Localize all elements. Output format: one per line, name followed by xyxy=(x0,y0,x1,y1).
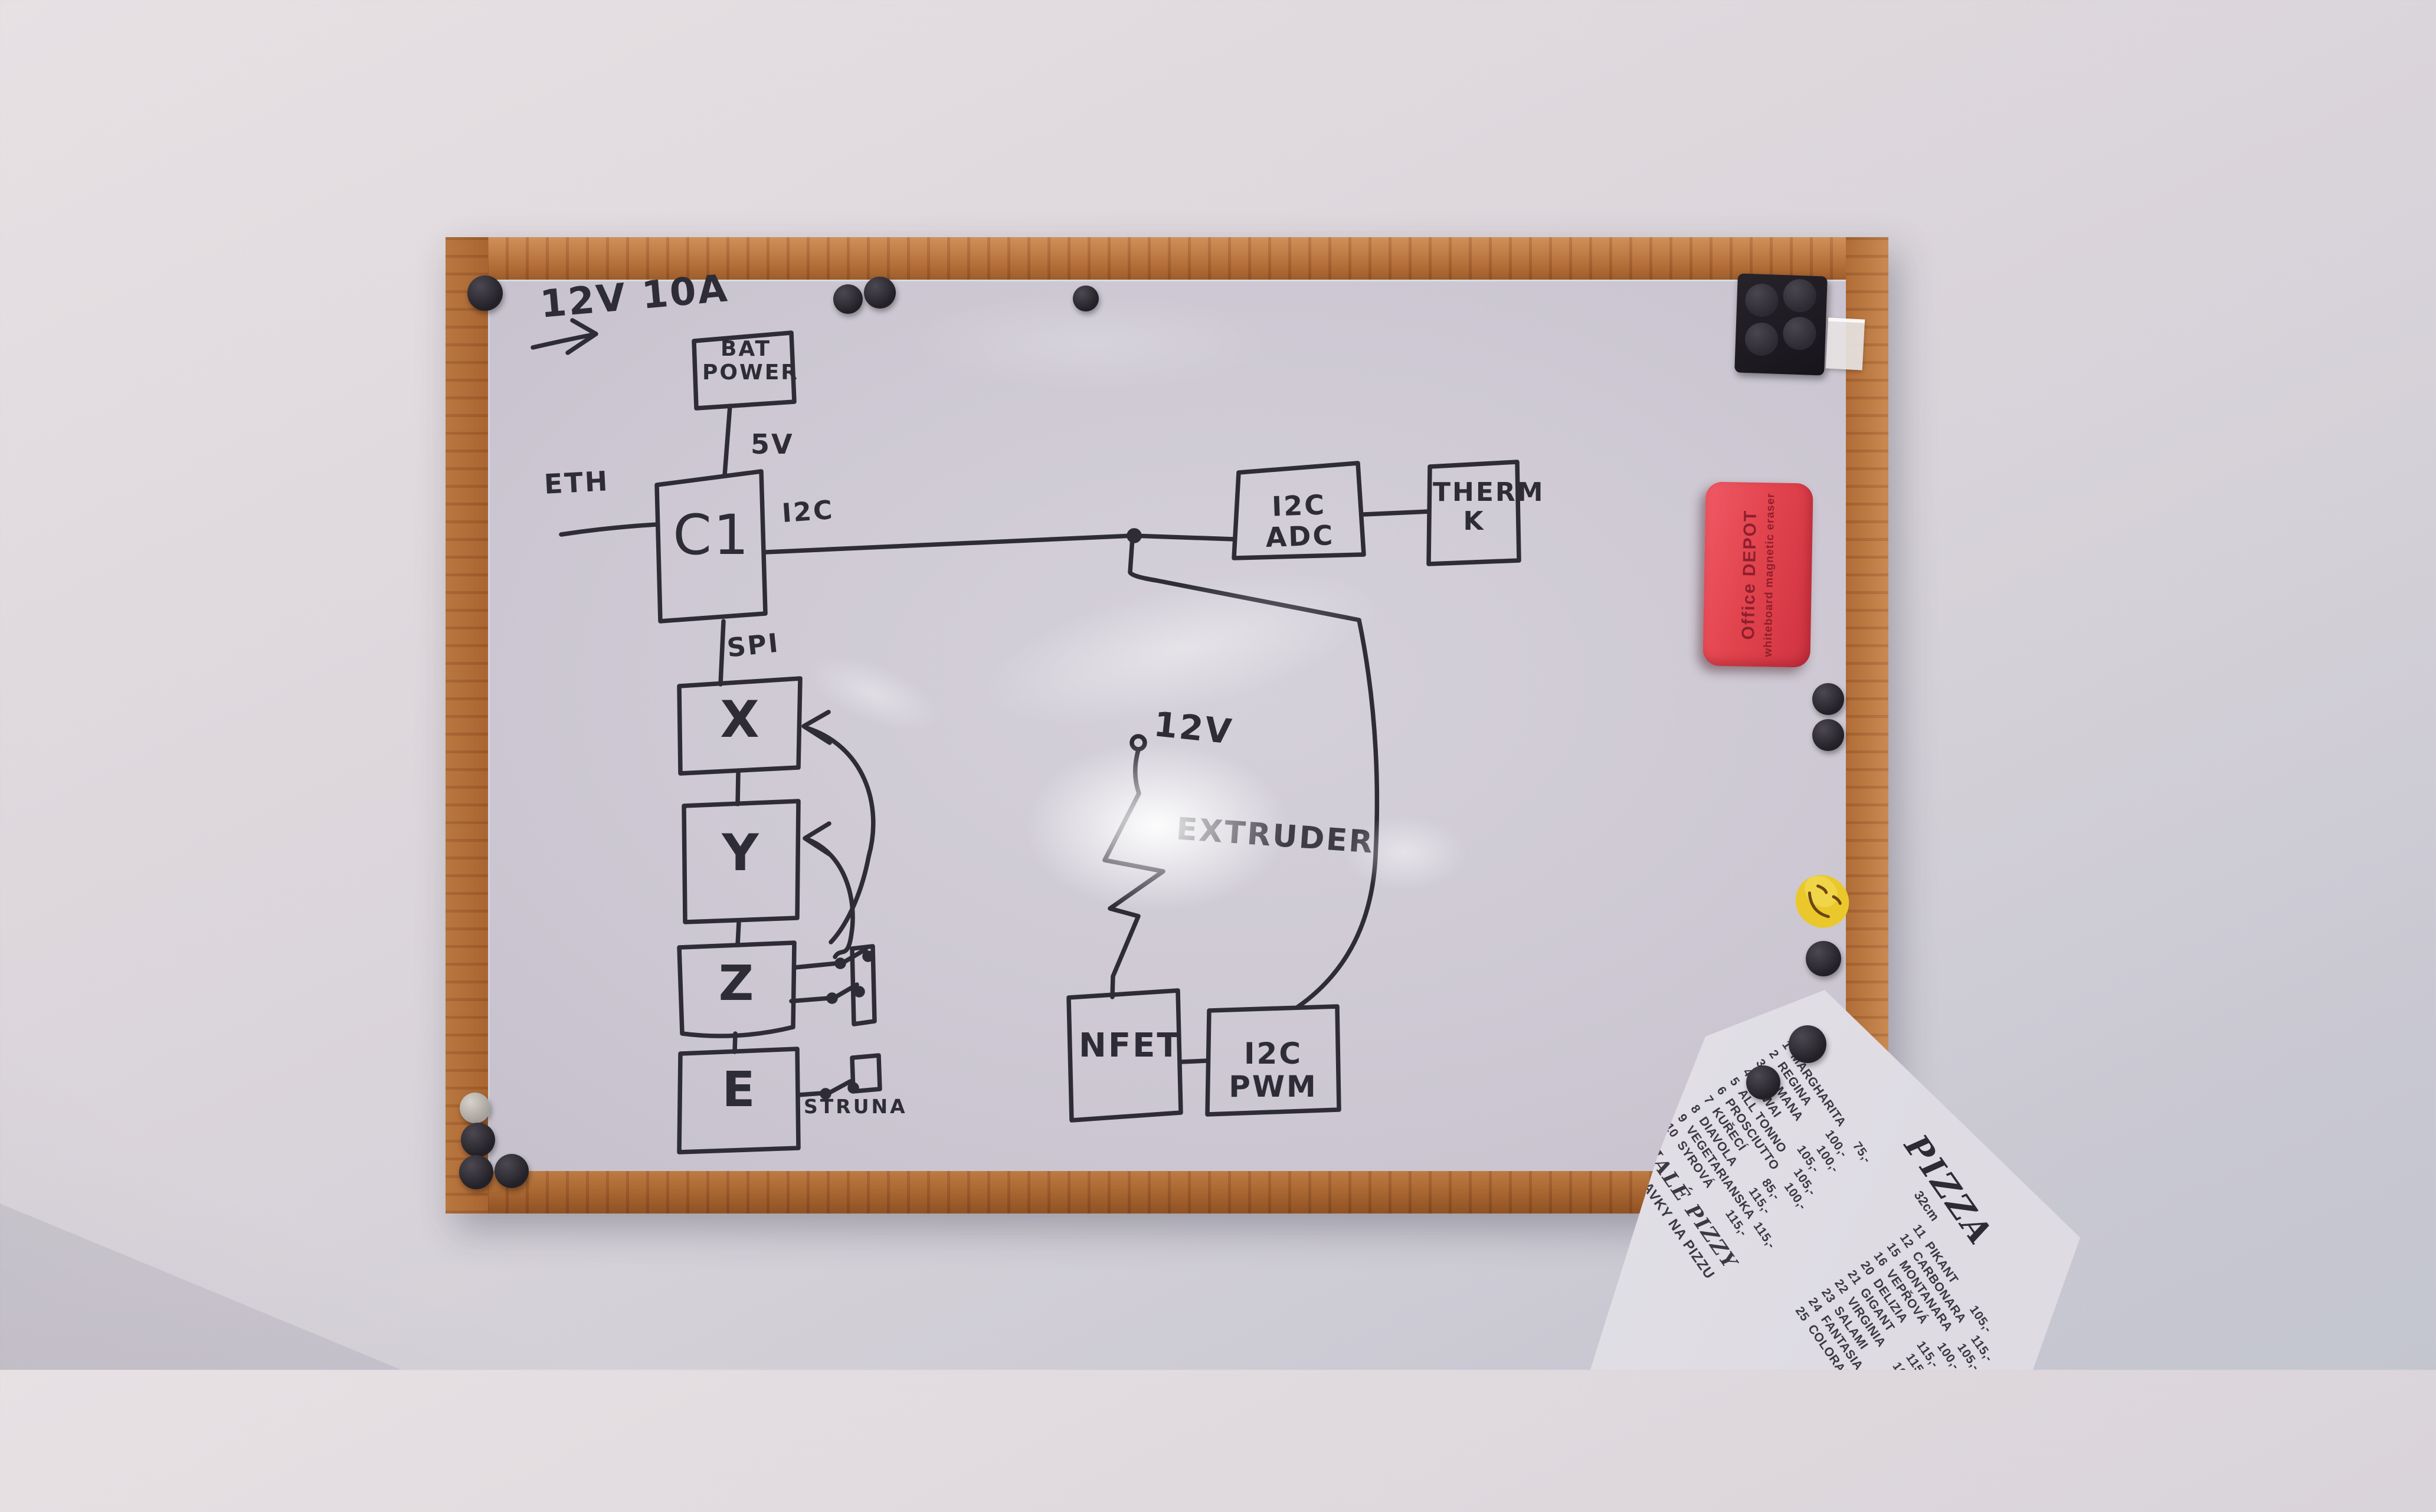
bat-power-label: BAT POWER xyxy=(702,337,790,385)
i2c-label: I2C xyxy=(781,496,835,528)
i2c-bus xyxy=(765,536,1234,552)
magnet xyxy=(1812,683,1844,715)
magnet xyxy=(833,284,863,314)
e-label: E xyxy=(692,1063,787,1117)
v5-label: 5V xyxy=(751,429,794,460)
therm-k-label: THERM K xyxy=(1433,478,1515,536)
c1-label: C1 xyxy=(673,504,751,566)
magnet-on-menu xyxy=(1746,1065,1780,1100)
tray-magnet xyxy=(1783,316,1817,350)
v12-label: 12V xyxy=(1152,705,1235,752)
tray-magnet xyxy=(1744,283,1779,317)
x-label: X xyxy=(690,691,791,748)
photo-whiteboard-scene: { "board": { "frame_color": "#b06c36", "… xyxy=(0,0,2436,1370)
eraser-subtitle: whiteboard magnetic eraser xyxy=(1762,493,1778,657)
magnet xyxy=(461,1123,495,1157)
magnet xyxy=(459,1155,493,1189)
eraser-brand: Office DEPOT xyxy=(1738,509,1761,639)
arc-into-x xyxy=(807,728,873,942)
i2c-adc-label: I2C ADC xyxy=(1239,489,1359,554)
spi-wire xyxy=(721,621,723,684)
magnet xyxy=(1073,286,1099,311)
magnet-on-menu xyxy=(1789,1025,1826,1063)
circuit-sketch xyxy=(0,0,2436,1370)
heater-element xyxy=(1105,750,1163,997)
i2c-pwm-label: I2C PWM xyxy=(1213,1037,1334,1103)
struna-label: STRUNA xyxy=(804,1096,908,1118)
y-label: Y xyxy=(692,825,791,881)
arc-into-y xyxy=(808,839,853,957)
z-switch-1 xyxy=(794,949,866,967)
tape-strip xyxy=(1826,317,1865,370)
magnet-grey xyxy=(460,1093,490,1123)
magnet xyxy=(1812,719,1844,751)
z-label: Z xyxy=(689,957,785,1011)
whiteboard-eraser: Office DEPOT whiteboard magnetic eraser xyxy=(1702,481,1813,667)
eth-wire xyxy=(561,524,657,534)
i2c-branch xyxy=(1130,538,1377,1007)
tray-magnet xyxy=(1744,322,1779,356)
magnet xyxy=(864,277,896,309)
magnet xyxy=(495,1154,529,1188)
eth-label: ETH xyxy=(543,466,610,500)
magnet xyxy=(467,275,503,311)
heater-terminal xyxy=(1132,736,1145,749)
spi-label: SPI xyxy=(726,628,781,662)
z-switch-2 xyxy=(791,985,857,1001)
magnet xyxy=(1806,941,1841,976)
nfet-label: NFET xyxy=(1079,1028,1174,1065)
magnet-tray xyxy=(1734,273,1828,375)
tray-magnet xyxy=(1783,278,1817,313)
